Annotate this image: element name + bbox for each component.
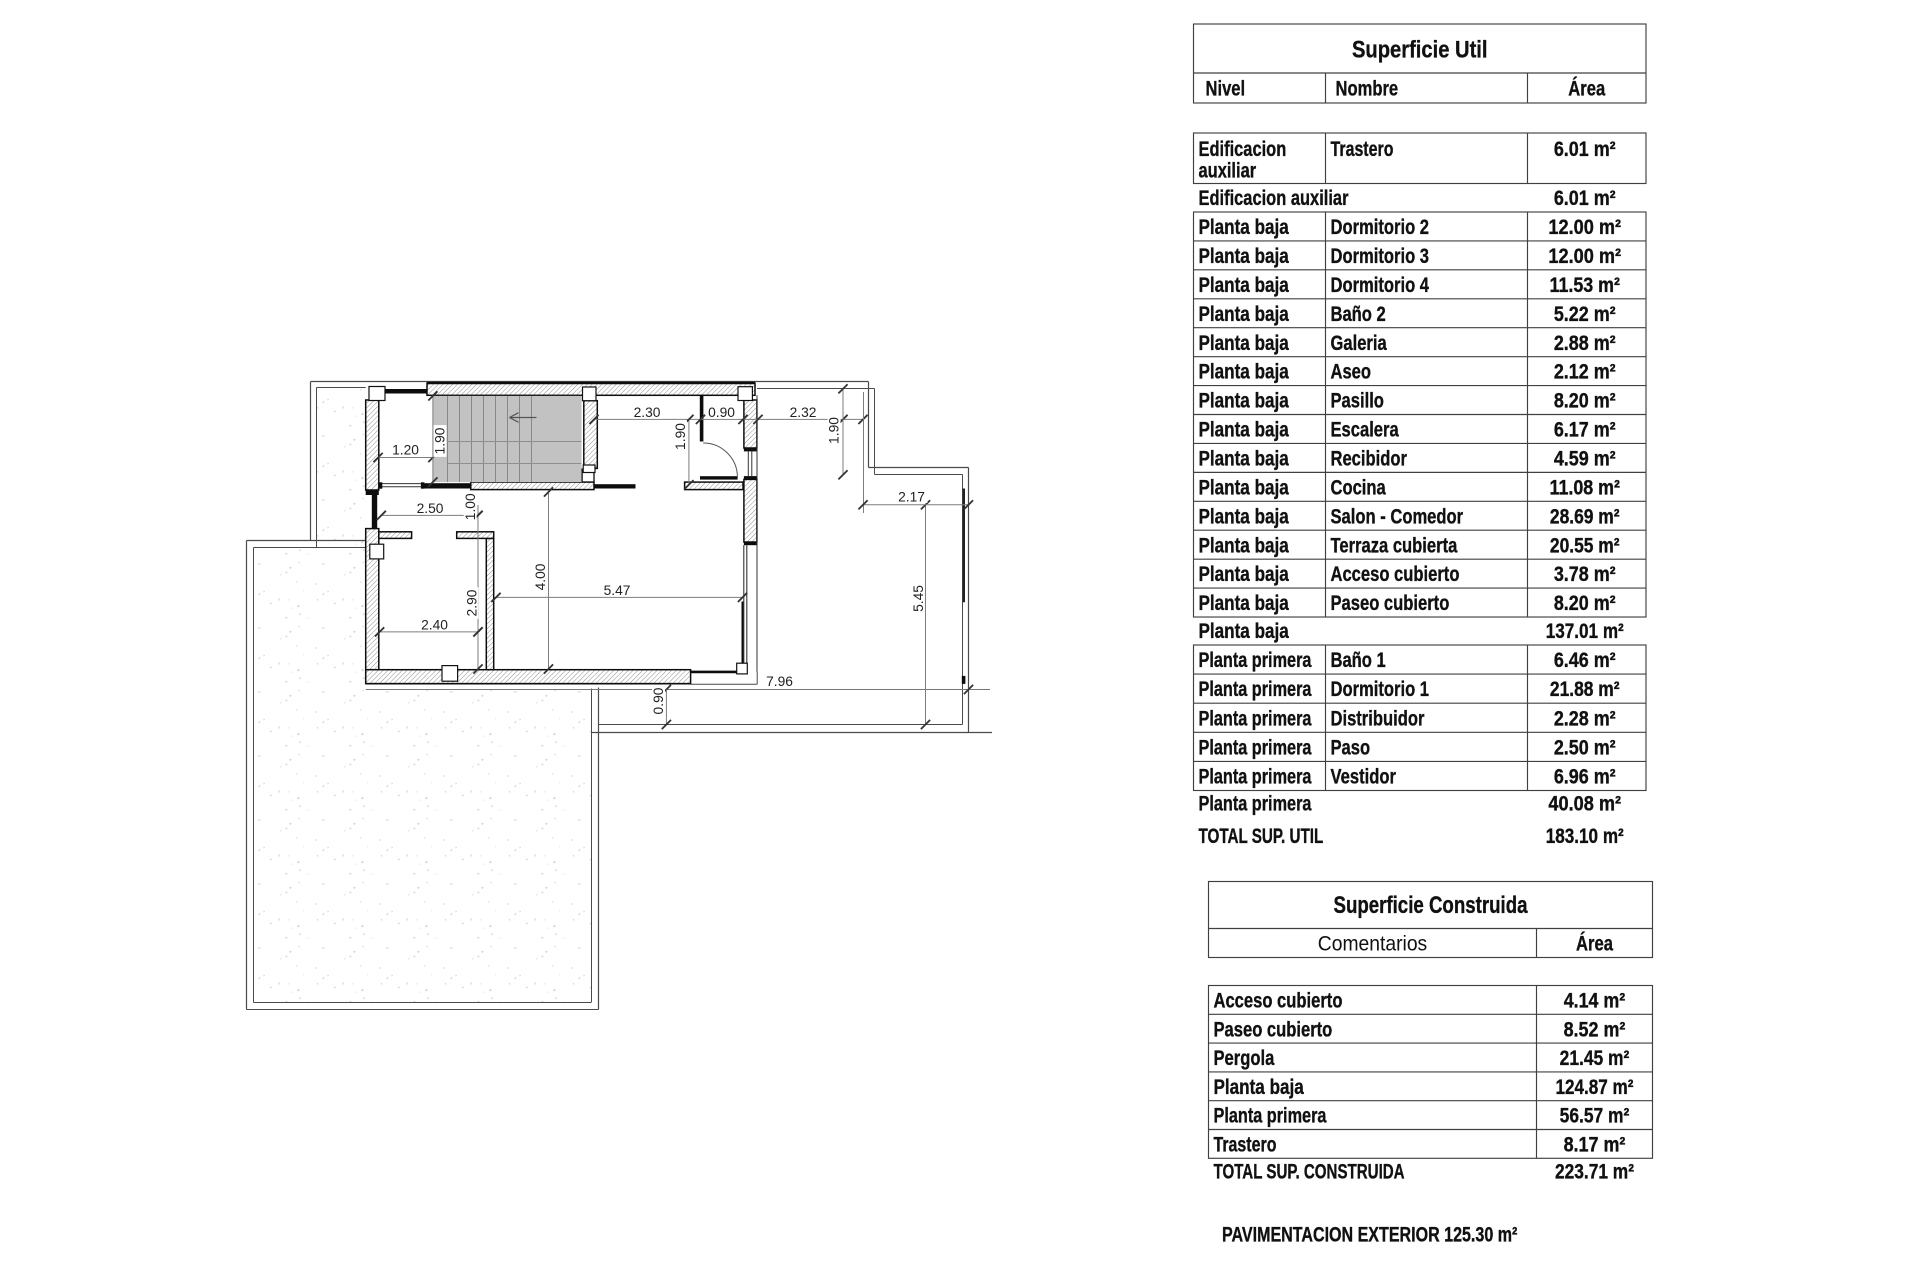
svg-text:Dormitorio 1: Dormitorio 1 [1331,678,1430,701]
svg-text:Baño 1: Baño 1 [1331,649,1386,672]
svg-text:Nivel: Nivel [1206,78,1246,101]
svg-text:Comentarios: Comentarios [1318,933,1427,956]
svg-text:20.55 m²: 20.55 m² [1550,535,1620,558]
svg-text:137.01 m²: 137.01 m² [1546,621,1624,644]
svg-text:Planta primera: Planta primera [1198,648,1311,671]
svg-text:183.10 m²: 183.10 m² [1546,826,1624,849]
svg-text:1.90: 1.90 [433,427,448,454]
svg-text:8.17 m²: 8.17 m² [1564,1133,1626,1157]
svg-text:Planta baja: Planta baja [1198,217,1289,240]
svg-text:7.96: 7.96 [766,674,793,689]
svg-text:5.22 m²: 5.22 m² [1554,303,1616,327]
svg-text:Escalera: Escalera [1331,419,1400,442]
svg-text:2.30: 2.30 [634,405,661,420]
svg-text:1.00: 1.00 [463,493,478,520]
svg-text:Pergola: Pergola [1214,1047,1275,1070]
svg-text:223.71 m²: 223.71 m² [1555,1161,1634,1184]
svg-text:Dormitorio 3: Dormitorio 3 [1331,245,1430,268]
svg-text:Dormitorio 2: Dormitorio 2 [1331,216,1430,239]
svg-text:11.08 m²: 11.08 m² [1550,476,1621,500]
svg-text:Trastero: Trastero [1331,137,1394,161]
svg-text:Planta baja: Planta baja [1198,419,1289,442]
svg-text:12.00 m²: 12.00 m² [1548,216,1621,240]
svg-text:Planta primera: Planta primera [1198,792,1311,815]
svg-text:Planta baja: Planta baja [1198,390,1289,413]
svg-text:Vestidor: Vestidor [1331,766,1397,789]
svg-text:12.00 m²: 12.00 m² [1548,245,1621,269]
svg-text:Paso: Paso [1331,737,1371,760]
svg-text:Planta baja: Planta baja [1198,361,1289,384]
svg-text:TOTAL SUP. CONSTRUIDA: TOTAL SUP. CONSTRUIDA [1214,1159,1405,1183]
svg-text:8.20 m²: 8.20 m² [1554,389,1616,413]
svg-text:0.90: 0.90 [708,405,735,420]
svg-text:Planta baja: Planta baja [1198,621,1289,644]
svg-text:Planta baja: Planta baja [1198,506,1289,529]
svg-text:Área: Área [1568,77,1605,101]
svg-text:Planta primera: Planta primera [1198,765,1311,788]
svg-text:2.17: 2.17 [898,489,925,504]
svg-text:4.14 m²: 4.14 m² [1564,989,1626,1013]
svg-text:Aseo: Aseo [1331,361,1372,384]
svg-text:2.88 m²: 2.88 m² [1554,332,1616,356]
svg-text:6.17 m²: 6.17 m² [1554,418,1616,442]
svg-text:Paseo cubierto: Paseo cubierto [1331,592,1450,615]
svg-text:4.00: 4.00 [533,563,548,590]
svg-text:2.32: 2.32 [790,405,817,420]
svg-text:Área: Área [1576,932,1613,956]
svg-text:2.50: 2.50 [417,501,444,516]
svg-text:Superficie Util: Superficie Util [1352,36,1488,63]
svg-text:Trastero: Trastero [1214,1132,1277,1156]
svg-text:2.50 m²: 2.50 m² [1554,736,1616,760]
svg-text:8.52 m²: 8.52 m² [1564,1018,1626,1042]
svg-text:2.12 m²: 2.12 m² [1554,360,1616,384]
svg-text:Superficie Construida: Superficie Construida [1333,892,1528,919]
svg-text:auxiliar: auxiliar [1199,159,1257,182]
svg-text:21.88 m²: 21.88 m² [1550,679,1620,702]
svg-text:Salon - Comedor: Salon - Comedor [1331,506,1464,529]
svg-text:Planta baja: Planta baja [1198,274,1289,297]
svg-text:40.08 m²: 40.08 m² [1548,792,1621,816]
svg-text:Planta primera: Planta primera [1213,1104,1326,1127]
svg-text:Planta primera: Planta primera [1198,735,1311,758]
svg-text:Planta baja: Planta baja [1198,332,1289,355]
svg-text:1.90: 1.90 [827,417,842,444]
svg-text:3.78 m²: 3.78 m² [1554,563,1616,587]
svg-text:1.20: 1.20 [392,443,419,458]
svg-text:2.28 m²: 2.28 m² [1554,707,1616,731]
svg-text:0.90: 0.90 [651,687,666,714]
svg-text:Recibidor: Recibidor [1331,448,1408,471]
svg-text:Planta baja: Planta baja [1214,1076,1305,1099]
svg-text:Planta primera: Planta primera [1198,677,1311,700]
svg-text:Paseo cubierto: Paseo cubierto [1214,1019,1333,1042]
svg-text:TOTAL SUP. UTIL: TOTAL SUP. UTIL [1199,824,1324,848]
svg-text:11.53 m²: 11.53 m² [1550,274,1621,298]
svg-text:Nombre: Nombre [1336,78,1399,101]
svg-text:6.01 m²: 6.01 m² [1554,138,1616,162]
svg-text:Edificacion auxiliar: Edificacion auxiliar [1199,186,1350,209]
svg-text:Baño 2: Baño 2 [1331,303,1386,326]
svg-text:Planta baja: Planta baja [1198,535,1289,558]
svg-text:6.96 m²: 6.96 m² [1554,765,1616,789]
svg-text:Dormitorio 4: Dormitorio 4 [1331,274,1430,297]
svg-text:124.87 m²: 124.87 m² [1556,1076,1634,1099]
svg-text:5.47: 5.47 [604,583,631,598]
svg-text:Planta baja: Planta baja [1198,245,1289,268]
svg-text:Acceso cubierto: Acceso cubierto [1214,990,1343,1013]
svg-text:Acceso cubierto: Acceso cubierto [1331,563,1460,586]
svg-text:2.90: 2.90 [465,589,480,616]
svg-text:1.90: 1.90 [673,423,688,450]
svg-text:Distribuidor: Distribuidor [1331,708,1425,731]
svg-text:56.57 m²: 56.57 m² [1560,1105,1630,1128]
svg-text:6.46 m²: 6.46 m² [1554,649,1616,673]
svg-text:PAVIMENTACION EXTERIOR 125.30: PAVIMENTACION EXTERIOR 125.30 m² [1222,1223,1517,1247]
svg-text:5.45: 5.45 [911,585,926,612]
svg-text:4.59 m²: 4.59 m² [1554,447,1616,471]
svg-text:Cocina: Cocina [1331,477,1387,500]
svg-text:21.45 m²: 21.45 m² [1560,1048,1630,1071]
svg-text:Planta baja: Planta baja [1198,448,1289,471]
svg-text:6.01 m²: 6.01 m² [1554,187,1616,211]
svg-text:2.40: 2.40 [421,617,448,632]
svg-text:Planta baja: Planta baja [1198,564,1289,587]
svg-text:28.69 m²: 28.69 m² [1550,506,1620,529]
svg-text:Planta primera: Planta primera [1198,706,1311,729]
svg-text:8.20 m²: 8.20 m² [1554,592,1616,616]
svg-text:Planta baja: Planta baja [1198,477,1289,500]
svg-text:Pasillo: Pasillo [1331,390,1384,413]
svg-text:Planta baja: Planta baja [1198,303,1289,326]
svg-text:Terraza cubierta: Terraza cubierta [1331,535,1458,558]
svg-text:Edificacion: Edificacion [1199,137,1287,160]
svg-text:Planta baja: Planta baja [1198,593,1289,616]
svg-text:Galeria: Galeria [1331,332,1388,355]
